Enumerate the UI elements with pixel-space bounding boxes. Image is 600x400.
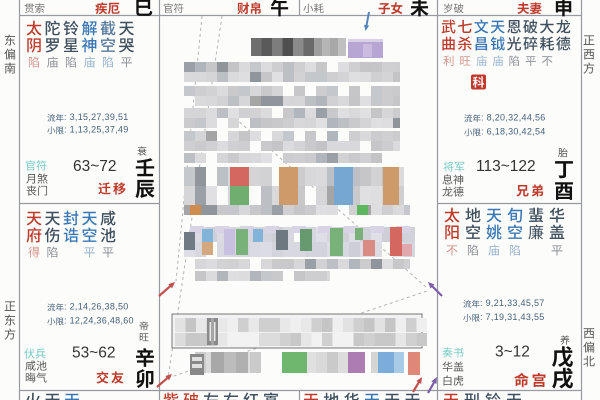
svg-text:: 3,15,27,39,51: : 3,15,27,39,51 <box>64 112 129 122</box>
svg-text:: 8,20,32,44,56: : 8,20,32,44,56 <box>481 113 546 123</box>
svg-text:: 6,18,30,42,54: : 6,18,30,42,54 <box>481 127 546 137</box>
svg-text:: 7,19,31,43,55: : 7,19,31,43,55 <box>480 312 545 322</box>
svg-text:3~12: 3~12 <box>495 344 530 361</box>
svg-text:: 1,13,25,37,49: : 1,13,25,37,49 <box>64 125 129 135</box>
svg-text:113~122: 113~122 <box>476 158 536 175</box>
svg-text:53~62: 53~62 <box>72 345 116 362</box>
svg-text:63~72: 63~72 <box>73 158 117 175</box>
svg-text:: 9,21,33,45,57: : 9,21,33,45,57 <box>480 298 545 308</box>
svg-text:: 2,14,26,38,50: : 2,14,26,38,50 <box>64 302 129 312</box>
svg-text:: 12,24,36,48,60: : 12,24,36,48,60 <box>64 316 134 326</box>
